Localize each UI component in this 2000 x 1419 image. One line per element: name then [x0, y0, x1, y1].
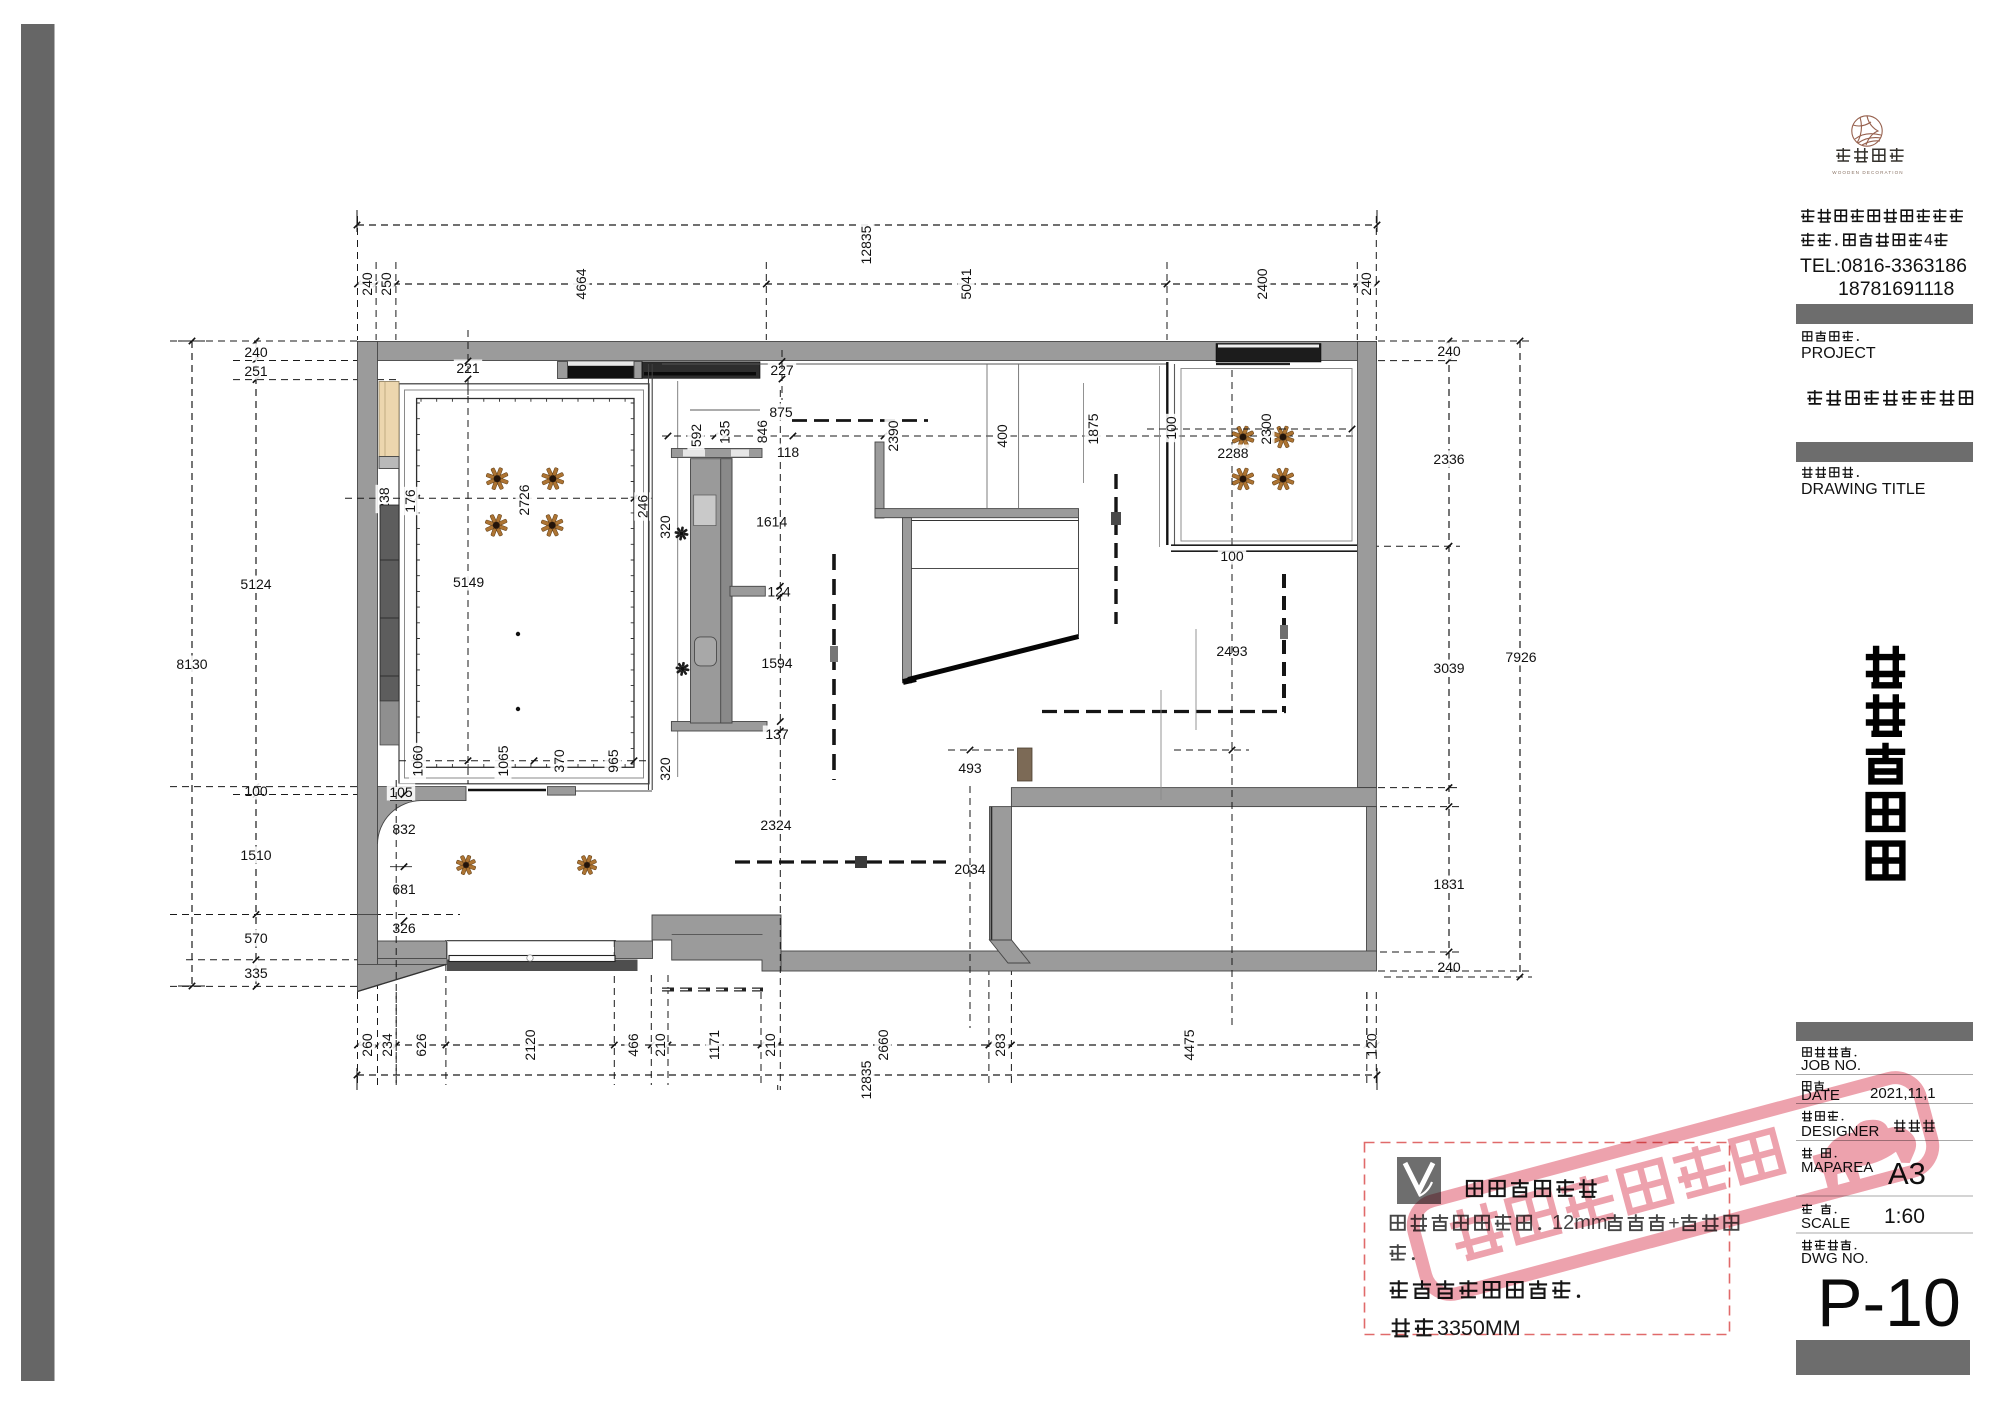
svg-text:283: 283 — [992, 1033, 1008, 1057]
svg-text:260: 260 — [359, 1033, 375, 1057]
svg-text:SCALE: SCALE — [1801, 1215, 1850, 1232]
svg-text:592: 592 — [688, 424, 704, 448]
svg-text:7926: 7926 — [1505, 649, 1536, 665]
svg-text:570: 570 — [244, 930, 268, 946]
svg-text:135: 135 — [717, 420, 733, 444]
svg-text:4664: 4664 — [573, 268, 589, 299]
svg-text:370: 370 — [551, 749, 567, 773]
svg-text:100: 100 — [244, 783, 268, 799]
svg-text:1875: 1875 — [1085, 413, 1101, 444]
svg-text:1510: 1510 — [240, 847, 271, 863]
svg-text:WOODEN DECORATION: WOODEN DECORATION — [1832, 170, 1903, 175]
svg-text:2390: 2390 — [885, 420, 901, 451]
svg-text:5124: 5124 — [240, 576, 271, 592]
svg-text:240: 240 — [244, 344, 268, 360]
svg-text:PROJECT: PROJECT — [1801, 345, 1876, 362]
svg-text:4: 4 — [1924, 232, 1933, 249]
svg-text:3350MM: 3350MM — [1437, 1316, 1521, 1340]
svg-text:118: 118 — [777, 444, 800, 460]
svg-text:2288: 2288 — [1217, 445, 1248, 461]
svg-text:1171: 1171 — [706, 1030, 722, 1060]
svg-text:240: 240 — [359, 272, 375, 296]
svg-text:TEL:0816-3363186: TEL:0816-3363186 — [1800, 255, 1967, 277]
svg-text:2336: 2336 — [1433, 451, 1464, 467]
svg-text:1:60: 1:60 — [1884, 1205, 1925, 1228]
svg-text:120: 120 — [1363, 1033, 1379, 1057]
svg-text:493: 493 — [958, 760, 982, 776]
svg-text:176: 176 — [402, 489, 418, 513]
svg-text:100: 100 — [1220, 548, 1244, 564]
svg-text:JOB NO.: JOB NO. — [1801, 1057, 1861, 1074]
svg-text:210: 210 — [652, 1033, 668, 1057]
svg-text:251: 251 — [244, 363, 268, 379]
svg-text:P-10: P-10 — [1817, 1265, 1961, 1341]
svg-text:210: 210 — [762, 1033, 778, 1057]
svg-text:4475: 4475 — [1181, 1029, 1197, 1060]
svg-text:12835: 12835 — [858, 225, 874, 264]
svg-text:320: 320 — [657, 515, 673, 539]
svg-text:466: 466 — [625, 1033, 641, 1057]
svg-text:875: 875 — [769, 404, 793, 420]
svg-text:240: 240 — [1437, 343, 1461, 359]
svg-text:626: 626 — [413, 1033, 429, 1057]
svg-text:965: 965 — [605, 749, 621, 773]
svg-text:1614: 1614 — [756, 514, 787, 530]
svg-text:2660: 2660 — [875, 1029, 891, 1060]
svg-text:5149: 5149 — [453, 574, 484, 590]
svg-text:250: 250 — [378, 272, 394, 296]
svg-text:240: 240 — [1437, 959, 1461, 975]
svg-text:2726: 2726 — [516, 484, 532, 515]
svg-text:240: 240 — [1358, 272, 1374, 296]
svg-text:2324: 2324 — [760, 817, 791, 833]
svg-text:1065: 1065 — [495, 745, 511, 776]
svg-text:3039: 3039 — [1433, 660, 1464, 676]
svg-text:400: 400 — [994, 424, 1010, 448]
svg-text:335: 335 — [244, 965, 268, 981]
svg-text:5041: 5041 — [958, 268, 974, 299]
svg-text:DRAWING TITLE: DRAWING TITLE — [1801, 481, 1925, 498]
svg-text:234: 234 — [379, 1033, 395, 1057]
svg-text:100: 100 — [1163, 416, 1179, 440]
svg-text:1831: 1831 — [1433, 876, 1464, 892]
svg-text:2120: 2120 — [522, 1029, 538, 1060]
svg-text:1594: 1594 — [761, 655, 792, 671]
svg-text:1060: 1060 — [409, 745, 425, 776]
svg-text:320: 320 — [657, 757, 673, 781]
svg-text:8130: 8130 — [176, 656, 207, 672]
svg-text:18781691118: 18781691118 — [1838, 278, 1954, 300]
svg-text:2400: 2400 — [1254, 268, 1270, 299]
svg-text:12835: 12835 — [858, 1060, 874, 1099]
svg-text:846: 846 — [754, 420, 770, 444]
